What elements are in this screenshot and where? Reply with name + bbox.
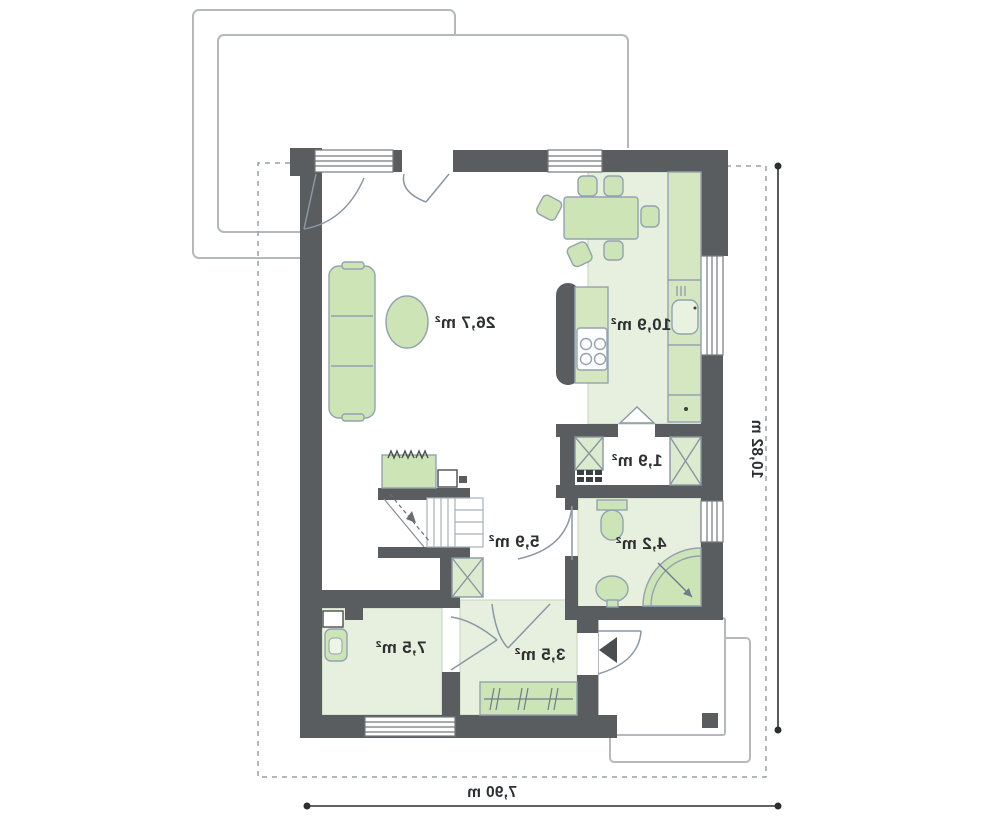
room-label-kitchen: 10,9 m²: [611, 315, 672, 335]
chair: [641, 206, 659, 227]
room-label-pantry: 1,9 m²: [612, 451, 663, 471]
chair: [604, 176, 623, 196]
room-label-utility: 7,5 m²: [376, 638, 427, 658]
sideboard-radiator: [382, 451, 436, 488]
window-bottom: [365, 717, 455, 736]
shaft-right: [670, 437, 701, 485]
chair: [604, 241, 623, 260]
chair: [578, 176, 597, 196]
kitchen-counter-right: [668, 172, 701, 422]
shaft-stairs: [452, 558, 483, 597]
dimension-width-label: 7,90 m: [467, 784, 517, 802]
wall-nub: [459, 476, 467, 483]
room-label-bathroom: 4,2 m²: [616, 534, 667, 554]
sofa: [329, 262, 375, 421]
tv-box: [438, 470, 457, 487]
window-top-left: [315, 150, 393, 172]
window-kitchen-right: [701, 256, 723, 355]
utility-bar: [346, 613, 356, 620]
room-label-entry: 3,5 m²: [515, 645, 566, 665]
floor-plan-drawing: [0, 0, 1000, 822]
floor-plan-page: 26,7 m² 10,9 m² 1,9 m² 5,9 m² 4,2 m² 7,5…: [0, 0, 1000, 822]
cooktop: [577, 328, 607, 370]
room-label-living: 26,7 m²: [435, 313, 496, 333]
porch-pillar: [702, 713, 718, 728]
dining-table: [564, 197, 638, 239]
utility-box: [323, 611, 343, 627]
room-label-hall: 5,9 m²: [489, 532, 540, 552]
boiler-door: [329, 638, 342, 654]
porch-outline: [598, 618, 750, 762]
window-bathroom-right: [701, 501, 723, 542]
dimension-height-label: 10,82 m: [747, 420, 765, 479]
coffee-table: [386, 296, 428, 348]
shaft-left: [575, 437, 603, 470]
window-top-right: [548, 150, 602, 172]
wardrobe: [480, 682, 577, 715]
